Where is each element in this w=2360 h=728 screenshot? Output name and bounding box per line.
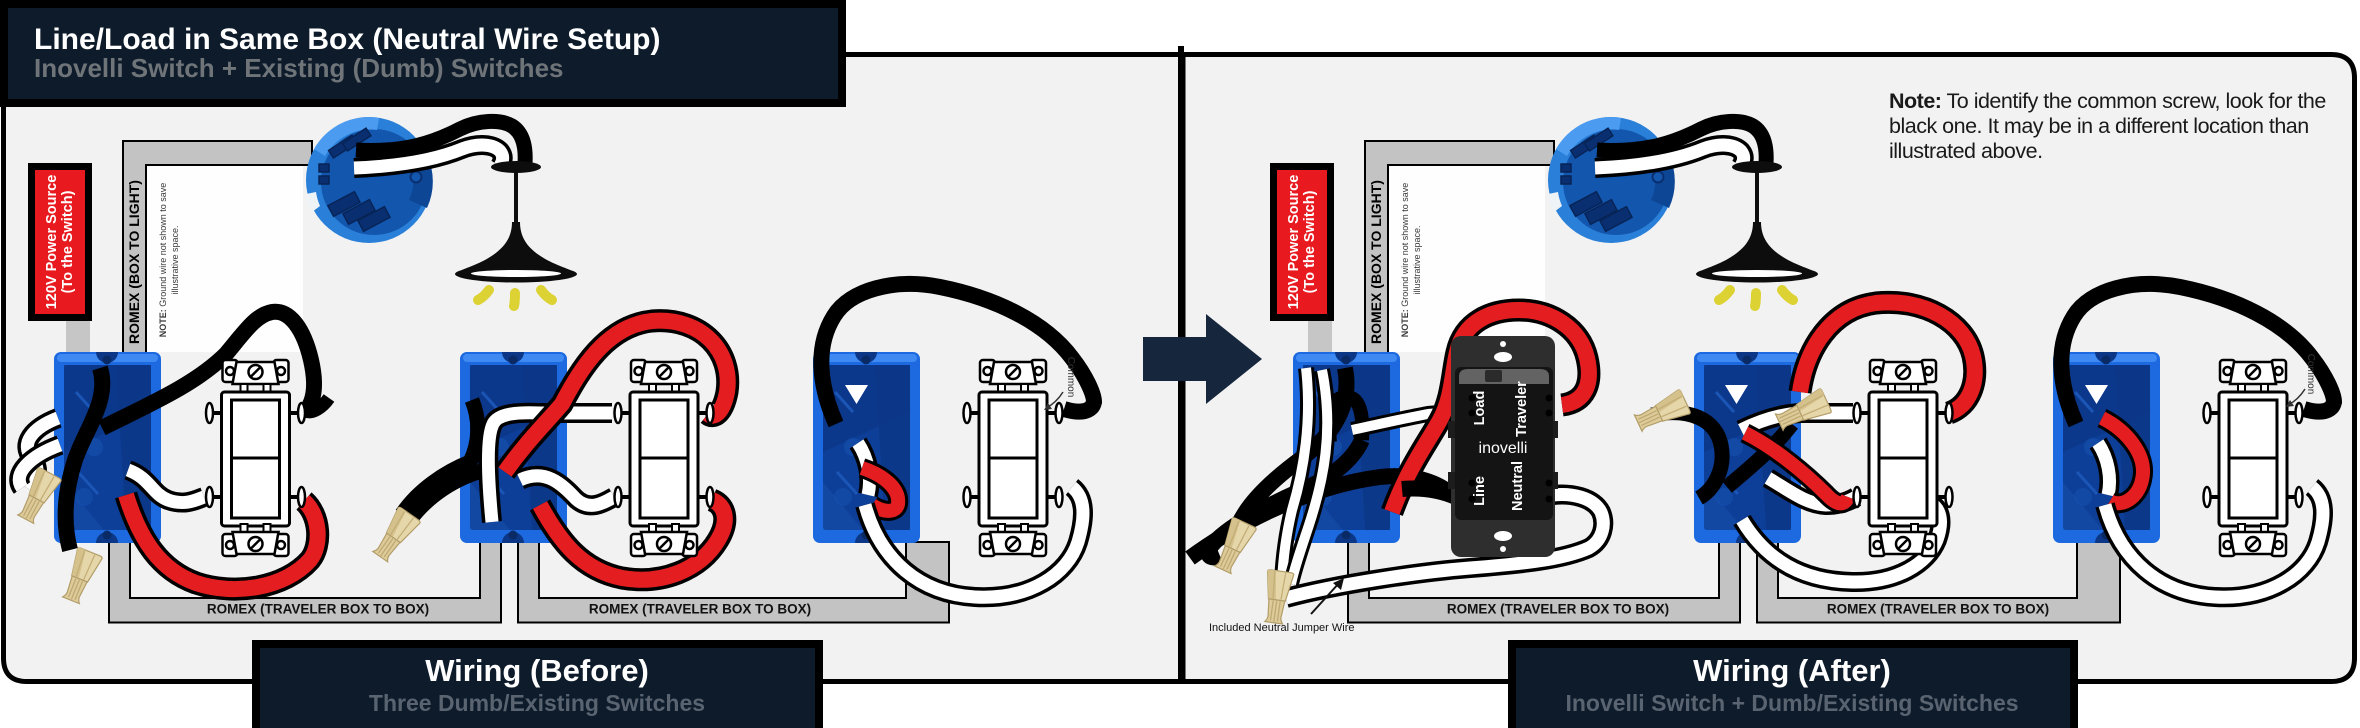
svg-text:ROMEX (TRAVELER BOX TO BOX): ROMEX (TRAVELER BOX TO BOX) [207, 602, 429, 617]
svg-text:Traveler: Traveler [1514, 381, 1530, 437]
svg-text:Wiring (Before): Wiring (Before) [425, 653, 649, 688]
svg-text:Note: To identify the common s: Note: To identify the common screw, look… [1889, 89, 2326, 113]
svg-text:Common: Common [2305, 354, 2316, 395]
svg-text:inovelli: inovelli [1479, 440, 1528, 457]
svg-text:Inovelli Switch + Existing (Du: Inovelli Switch + Existing (Dumb) Switch… [34, 53, 563, 83]
svg-text:120V Power Source: 120V Power Source [1286, 175, 1302, 310]
svg-text:Neutral: Neutral [1510, 461, 1526, 511]
svg-text:(To the Switch): (To the Switch) [60, 190, 76, 293]
svg-text:Common: Common [1065, 357, 1076, 398]
svg-text:Line: Line [1472, 476, 1488, 506]
svg-text:NOTE: Ground wire not shown to: NOTE: Ground wire not shown to save [1400, 183, 1410, 338]
svg-text:120V Power Source: 120V Power Source [44, 175, 60, 310]
svg-text:(To the Switch): (To the Switch) [1302, 190, 1318, 293]
svg-text:ROMEX (TRAVELER BOX TO BOX): ROMEX (TRAVELER BOX TO BOX) [1827, 602, 2049, 617]
svg-text:Inovelli Switch + Dumb/Existin: Inovelli Switch + Dumb/Existing Switches [1565, 690, 2018, 716]
svg-text:ROMEX (BOX TO LIGHT): ROMEX (BOX TO LIGHT) [126, 180, 142, 344]
svg-text:Line/Load in Same Box (Neutral: Line/Load in Same Box (Neutral Wire Setu… [34, 23, 660, 56]
svg-text:Included Neutral Jumper Wire: Included Neutral Jumper Wire [1209, 622, 1355, 634]
svg-text:illustrated above.: illustrated above. [1889, 139, 2043, 163]
svg-text:ROMEX (TRAVELER BOX TO BOX): ROMEX (TRAVELER BOX TO BOX) [589, 602, 811, 617]
svg-text:NOTE: Ground wire not shown to: NOTE: Ground wire not shown to save [158, 183, 168, 338]
svg-text:illustrative space.: illustrative space. [170, 225, 180, 294]
svg-text:ROMEX (BOX TO LIGHT): ROMEX (BOX TO LIGHT) [1368, 180, 1384, 344]
svg-text:black one. It may be in a diff: black one. It may be in a different loca… [1889, 114, 2309, 138]
svg-text:Load: Load [1472, 391, 1488, 426]
svg-text:Three Dumb/Existing Switches: Three Dumb/Existing Switches [369, 690, 705, 716]
svg-text:ROMEX (TRAVELER BOX TO BOX): ROMEX (TRAVELER BOX TO BOX) [1447, 602, 1669, 617]
svg-text:illustrative space.: illustrative space. [1412, 225, 1422, 294]
svg-text:Wiring (After): Wiring (After) [1693, 653, 1891, 688]
